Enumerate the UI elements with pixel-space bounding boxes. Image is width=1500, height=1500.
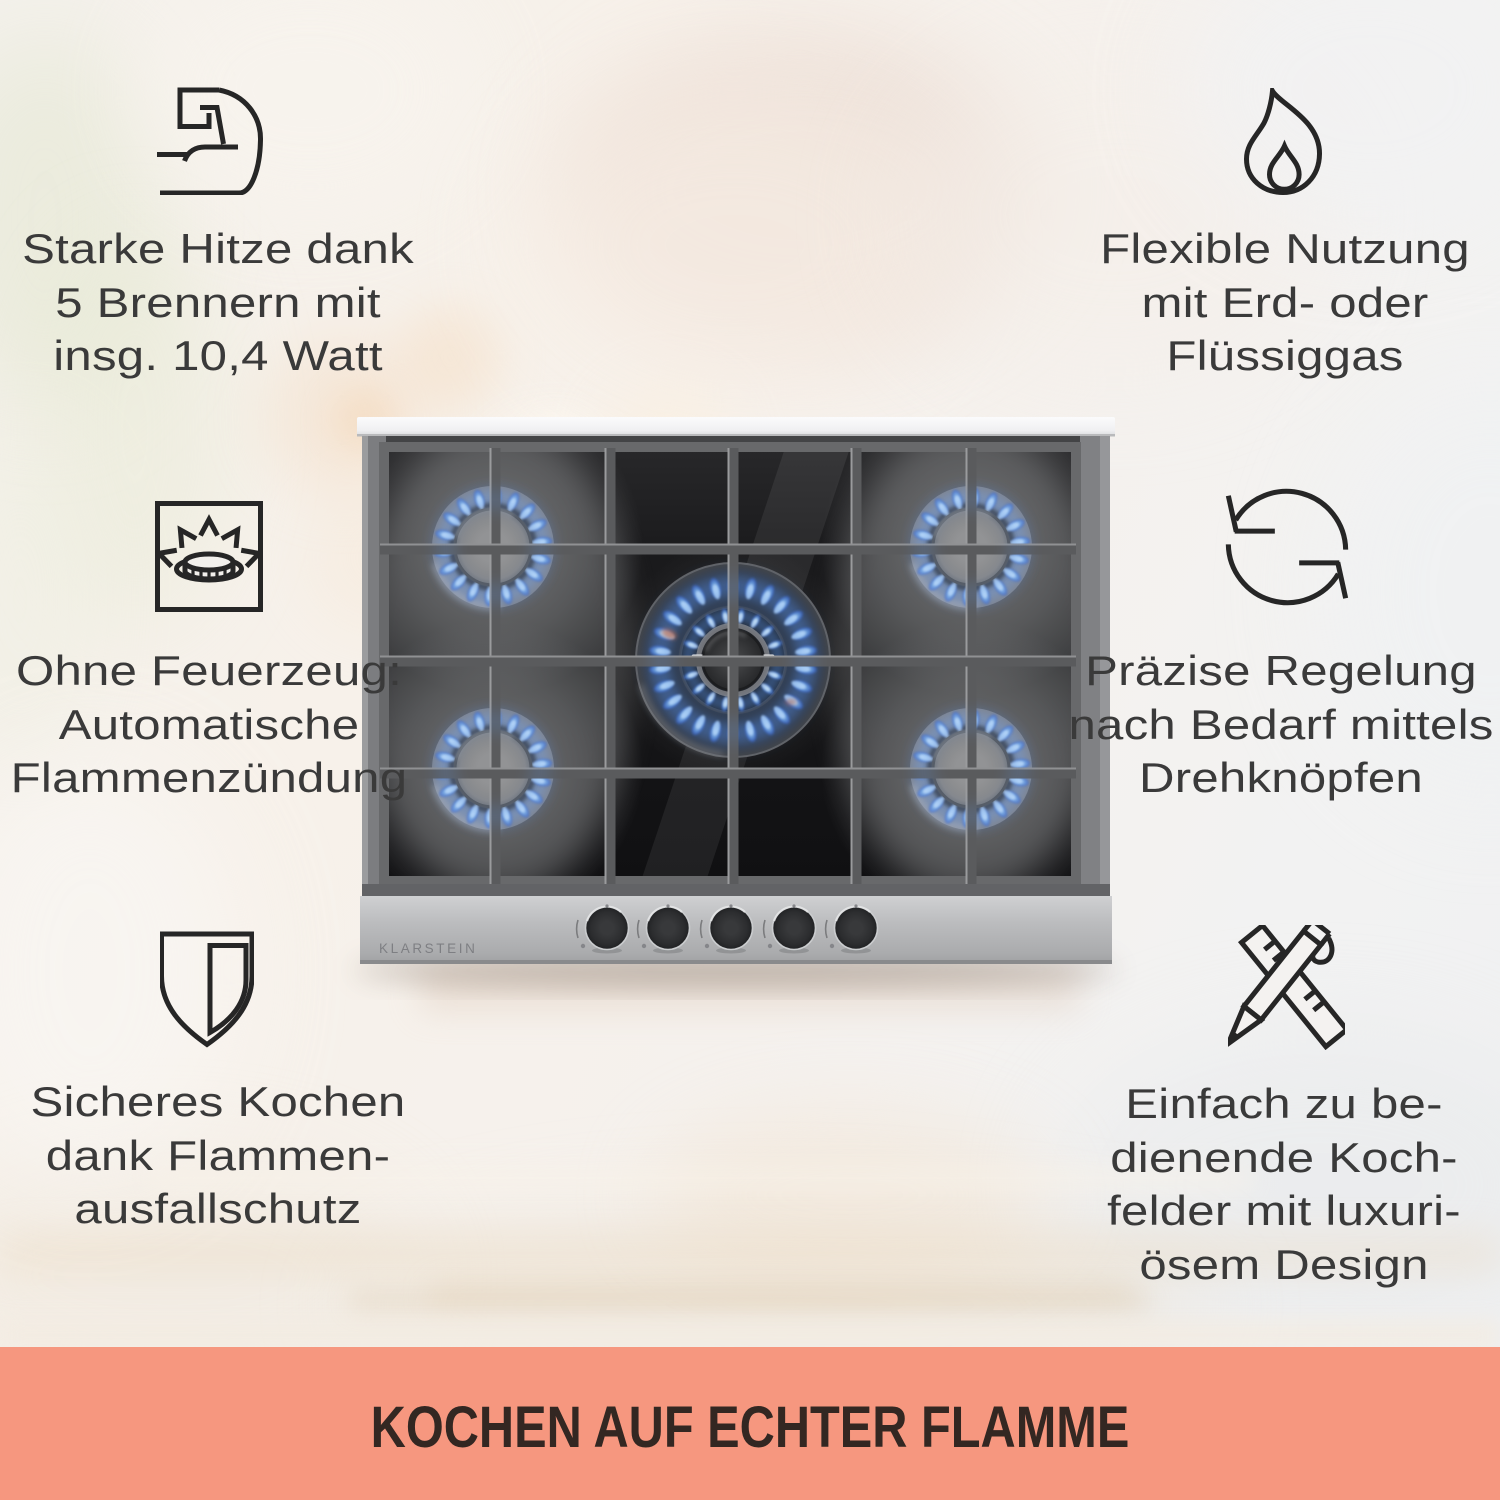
svg-text:KLARSTEIN: KLARSTEIN xyxy=(379,941,477,956)
